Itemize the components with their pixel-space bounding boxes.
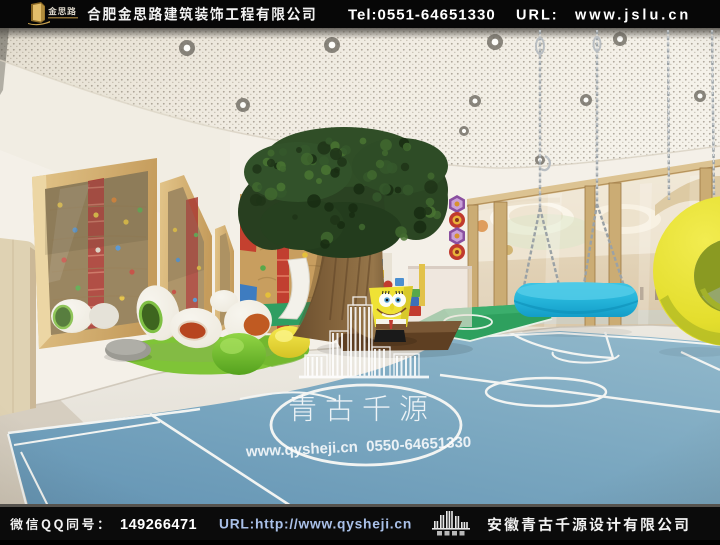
svg-text:Tel:0551-64651330: Tel:0551-64651330 — [348, 7, 496, 24]
svg-text:149266471: 149266471 — [120, 517, 197, 533]
svg-text:URL:: URL: — [516, 8, 559, 24]
svg-text:www.jslu.cn: www.jslu.cn — [574, 8, 691, 24]
svg-text:URL:http://www.qysheji.cn: URL:http://www.qysheji.cn — [219, 517, 412, 532]
